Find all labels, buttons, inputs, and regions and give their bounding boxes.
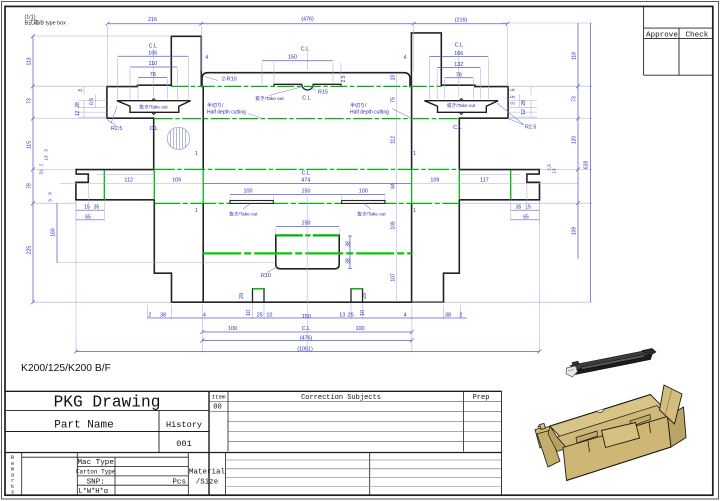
svg-text:Mac Type: Mac Type xyxy=(77,459,114,467)
svg-text:0.5: 0.5 xyxy=(89,98,95,105)
svg-text:166: 166 xyxy=(148,51,157,57)
svg-text:113: 113 xyxy=(27,57,33,65)
svg-text:5: 5 xyxy=(511,95,517,98)
svg-text:C.L: C.L xyxy=(149,44,157,50)
svg-text:(1/1): (1/1) xyxy=(25,14,36,20)
svg-text:107: 107 xyxy=(391,273,397,282)
svg-text:38: 38 xyxy=(160,313,166,319)
svg-text:R2.5: R2.5 xyxy=(525,124,536,130)
svg-text:10: 10 xyxy=(266,313,272,319)
svg-text:15: 15 xyxy=(84,205,90,211)
svg-text:150: 150 xyxy=(288,55,297,61)
svg-text:75: 75 xyxy=(391,97,397,103)
svg-text:166: 166 xyxy=(454,51,463,57)
svg-text:半切り/: 半切り/ xyxy=(350,102,367,109)
svg-text:R15: R15 xyxy=(318,89,328,95)
svg-text:35: 35 xyxy=(94,205,100,211)
svg-text:12: 12 xyxy=(521,109,527,115)
svg-text:35: 35 xyxy=(516,205,522,211)
svg-text:628: 628 xyxy=(584,161,590,170)
svg-text:150: 150 xyxy=(302,188,311,194)
svg-text:100: 100 xyxy=(244,188,253,194)
svg-text:112: 112 xyxy=(391,136,397,144)
svg-text:K200/125/K200 B/F: K200/125/K200 B/F xyxy=(21,363,111,374)
svg-text:History: History xyxy=(166,420,202,430)
svg-text:C.L: C.L xyxy=(302,95,310,101)
svg-text:抜き/Take out: 抜き/Take out xyxy=(229,211,258,218)
svg-text:216: 216 xyxy=(148,17,157,23)
svg-text:(1051): (1051) xyxy=(297,347,313,353)
svg-text:(216): (216) xyxy=(455,18,468,24)
svg-text:C.L: C.L xyxy=(455,43,463,49)
svg-text:3: 3 xyxy=(44,149,49,152)
svg-text:38: 38 xyxy=(445,313,451,319)
svg-text:1: 1 xyxy=(195,151,198,157)
svg-text:抜き/Take out: 抜き/Take out xyxy=(139,104,168,111)
svg-text:Part Name: Part Name xyxy=(54,419,113,431)
svg-text:120: 120 xyxy=(572,136,578,145)
svg-text:C.L: C.L xyxy=(302,171,310,177)
svg-text:(476): (476) xyxy=(301,17,314,23)
svg-text:100: 100 xyxy=(356,326,365,332)
svg-text:115: 115 xyxy=(27,141,33,149)
svg-text:15: 15 xyxy=(525,205,531,211)
svg-text:118: 118 xyxy=(572,52,578,60)
svg-text:/Size: /Size xyxy=(196,479,219,487)
svg-text:s: s xyxy=(11,490,14,496)
svg-text:4: 4 xyxy=(203,313,206,319)
svg-text:38: 38 xyxy=(346,258,352,264)
svg-text:225: 225 xyxy=(27,246,33,255)
svg-text:150: 150 xyxy=(302,314,311,320)
svg-text:3: 3 xyxy=(511,102,517,105)
svg-text:109: 109 xyxy=(430,178,439,184)
svg-text:78: 78 xyxy=(456,72,462,78)
svg-text:SNP:: SNP: xyxy=(87,478,105,486)
svg-text:C.L: C.L xyxy=(453,125,461,131)
svg-text:78: 78 xyxy=(150,72,156,78)
svg-text:10: 10 xyxy=(360,310,366,316)
svg-text:31: 31 xyxy=(39,169,44,175)
svg-text:38: 38 xyxy=(346,241,352,247)
svg-text:Item: Item xyxy=(212,394,226,401)
svg-text:001: 001 xyxy=(176,439,191,449)
svg-text:Pcs: Pcs xyxy=(172,478,186,486)
svg-text:117: 117 xyxy=(480,178,489,184)
svg-text:PKG Drawing: PKG Drawing xyxy=(54,394,161,412)
svg-text:132: 132 xyxy=(454,62,463,68)
svg-text:25: 25 xyxy=(257,313,263,319)
svg-text:1: 1 xyxy=(413,208,416,214)
svg-text:73: 73 xyxy=(572,96,578,102)
svg-text:R10: R10 xyxy=(261,273,271,279)
svg-text:Approve: Approve xyxy=(646,31,678,39)
svg-text:Check: Check xyxy=(686,31,709,39)
svg-text:4: 4 xyxy=(404,55,407,61)
svg-text:L*W*H*α: L*W*H*α xyxy=(79,488,108,496)
svg-text:78: 78 xyxy=(27,183,33,189)
svg-text:109: 109 xyxy=(391,221,397,230)
svg-text:28: 28 xyxy=(75,102,81,108)
svg-text:474: 474 xyxy=(301,178,310,184)
svg-text:84: 84 xyxy=(391,183,397,189)
svg-text:13: 13 xyxy=(339,313,345,319)
svg-text:抜き/Take out: 抜き/Take out xyxy=(255,95,284,102)
svg-text:110: 110 xyxy=(149,61,158,67)
svg-text:100: 100 xyxy=(359,188,368,194)
svg-text:3: 3 xyxy=(48,199,53,202)
svg-text:109: 109 xyxy=(172,178,181,184)
svg-text:25: 25 xyxy=(348,313,354,319)
svg-text:10: 10 xyxy=(246,310,252,316)
svg-text:2: 2 xyxy=(148,313,151,319)
svg-text:Material: Material xyxy=(189,469,226,477)
svg-text:C.L: C.L xyxy=(301,47,309,53)
svg-text:4: 4 xyxy=(404,313,407,319)
svg-text:抜き/Take out: 抜き/Take out xyxy=(447,102,476,109)
svg-text:Half depth cutting: Half depth cutting xyxy=(350,110,389,116)
svg-text:抜き/Take out: 抜き/Take out xyxy=(357,211,386,218)
svg-text:2: 2 xyxy=(459,313,462,319)
svg-text:8: 8 xyxy=(48,192,53,195)
svg-text:(476): (476) xyxy=(300,335,313,341)
svg-text:12: 12 xyxy=(75,111,81,117)
svg-text:C.L: C.L xyxy=(150,126,158,132)
svg-text:28: 28 xyxy=(521,100,527,106)
svg-text:2-R10: 2-R10 xyxy=(222,77,237,83)
svg-text:109: 109 xyxy=(572,227,578,236)
svg-text:00: 00 xyxy=(213,403,221,411)
svg-text:160: 160 xyxy=(51,228,57,237)
svg-text:20: 20 xyxy=(391,75,397,81)
svg-text:B式箱/B type box: B式箱/B type box xyxy=(25,19,67,27)
svg-text:C.L: C.L xyxy=(302,326,310,332)
svg-text:13: 13 xyxy=(552,168,557,174)
svg-text:13: 13 xyxy=(44,155,49,161)
svg-text:29: 29 xyxy=(239,293,245,299)
svg-text:5: 5 xyxy=(511,88,517,91)
svg-text:150: 150 xyxy=(302,221,311,227)
svg-text:4: 4 xyxy=(205,55,208,61)
svg-text:Prep: Prep xyxy=(473,394,490,402)
svg-text:Half depth cutting: Half depth cutting xyxy=(207,110,246,116)
svg-text:Carton Type: Carton Type xyxy=(76,468,116,475)
svg-text:Correction Subjects: Correction Subjects xyxy=(301,394,381,402)
svg-text:1: 1 xyxy=(413,151,416,157)
svg-text:2: 2 xyxy=(39,163,44,166)
svg-text:3: 3 xyxy=(78,89,84,92)
svg-text:R2.5: R2.5 xyxy=(111,126,122,132)
svg-text:2.5: 2.5 xyxy=(341,75,347,82)
svg-text:100: 100 xyxy=(228,326,237,332)
svg-text:1: 1 xyxy=(195,208,198,214)
svg-text:29: 29 xyxy=(362,293,368,299)
svg-text:112: 112 xyxy=(124,178,133,184)
svg-text:半切り/: 半切り/ xyxy=(207,102,224,109)
svg-text:73: 73 xyxy=(27,98,33,104)
